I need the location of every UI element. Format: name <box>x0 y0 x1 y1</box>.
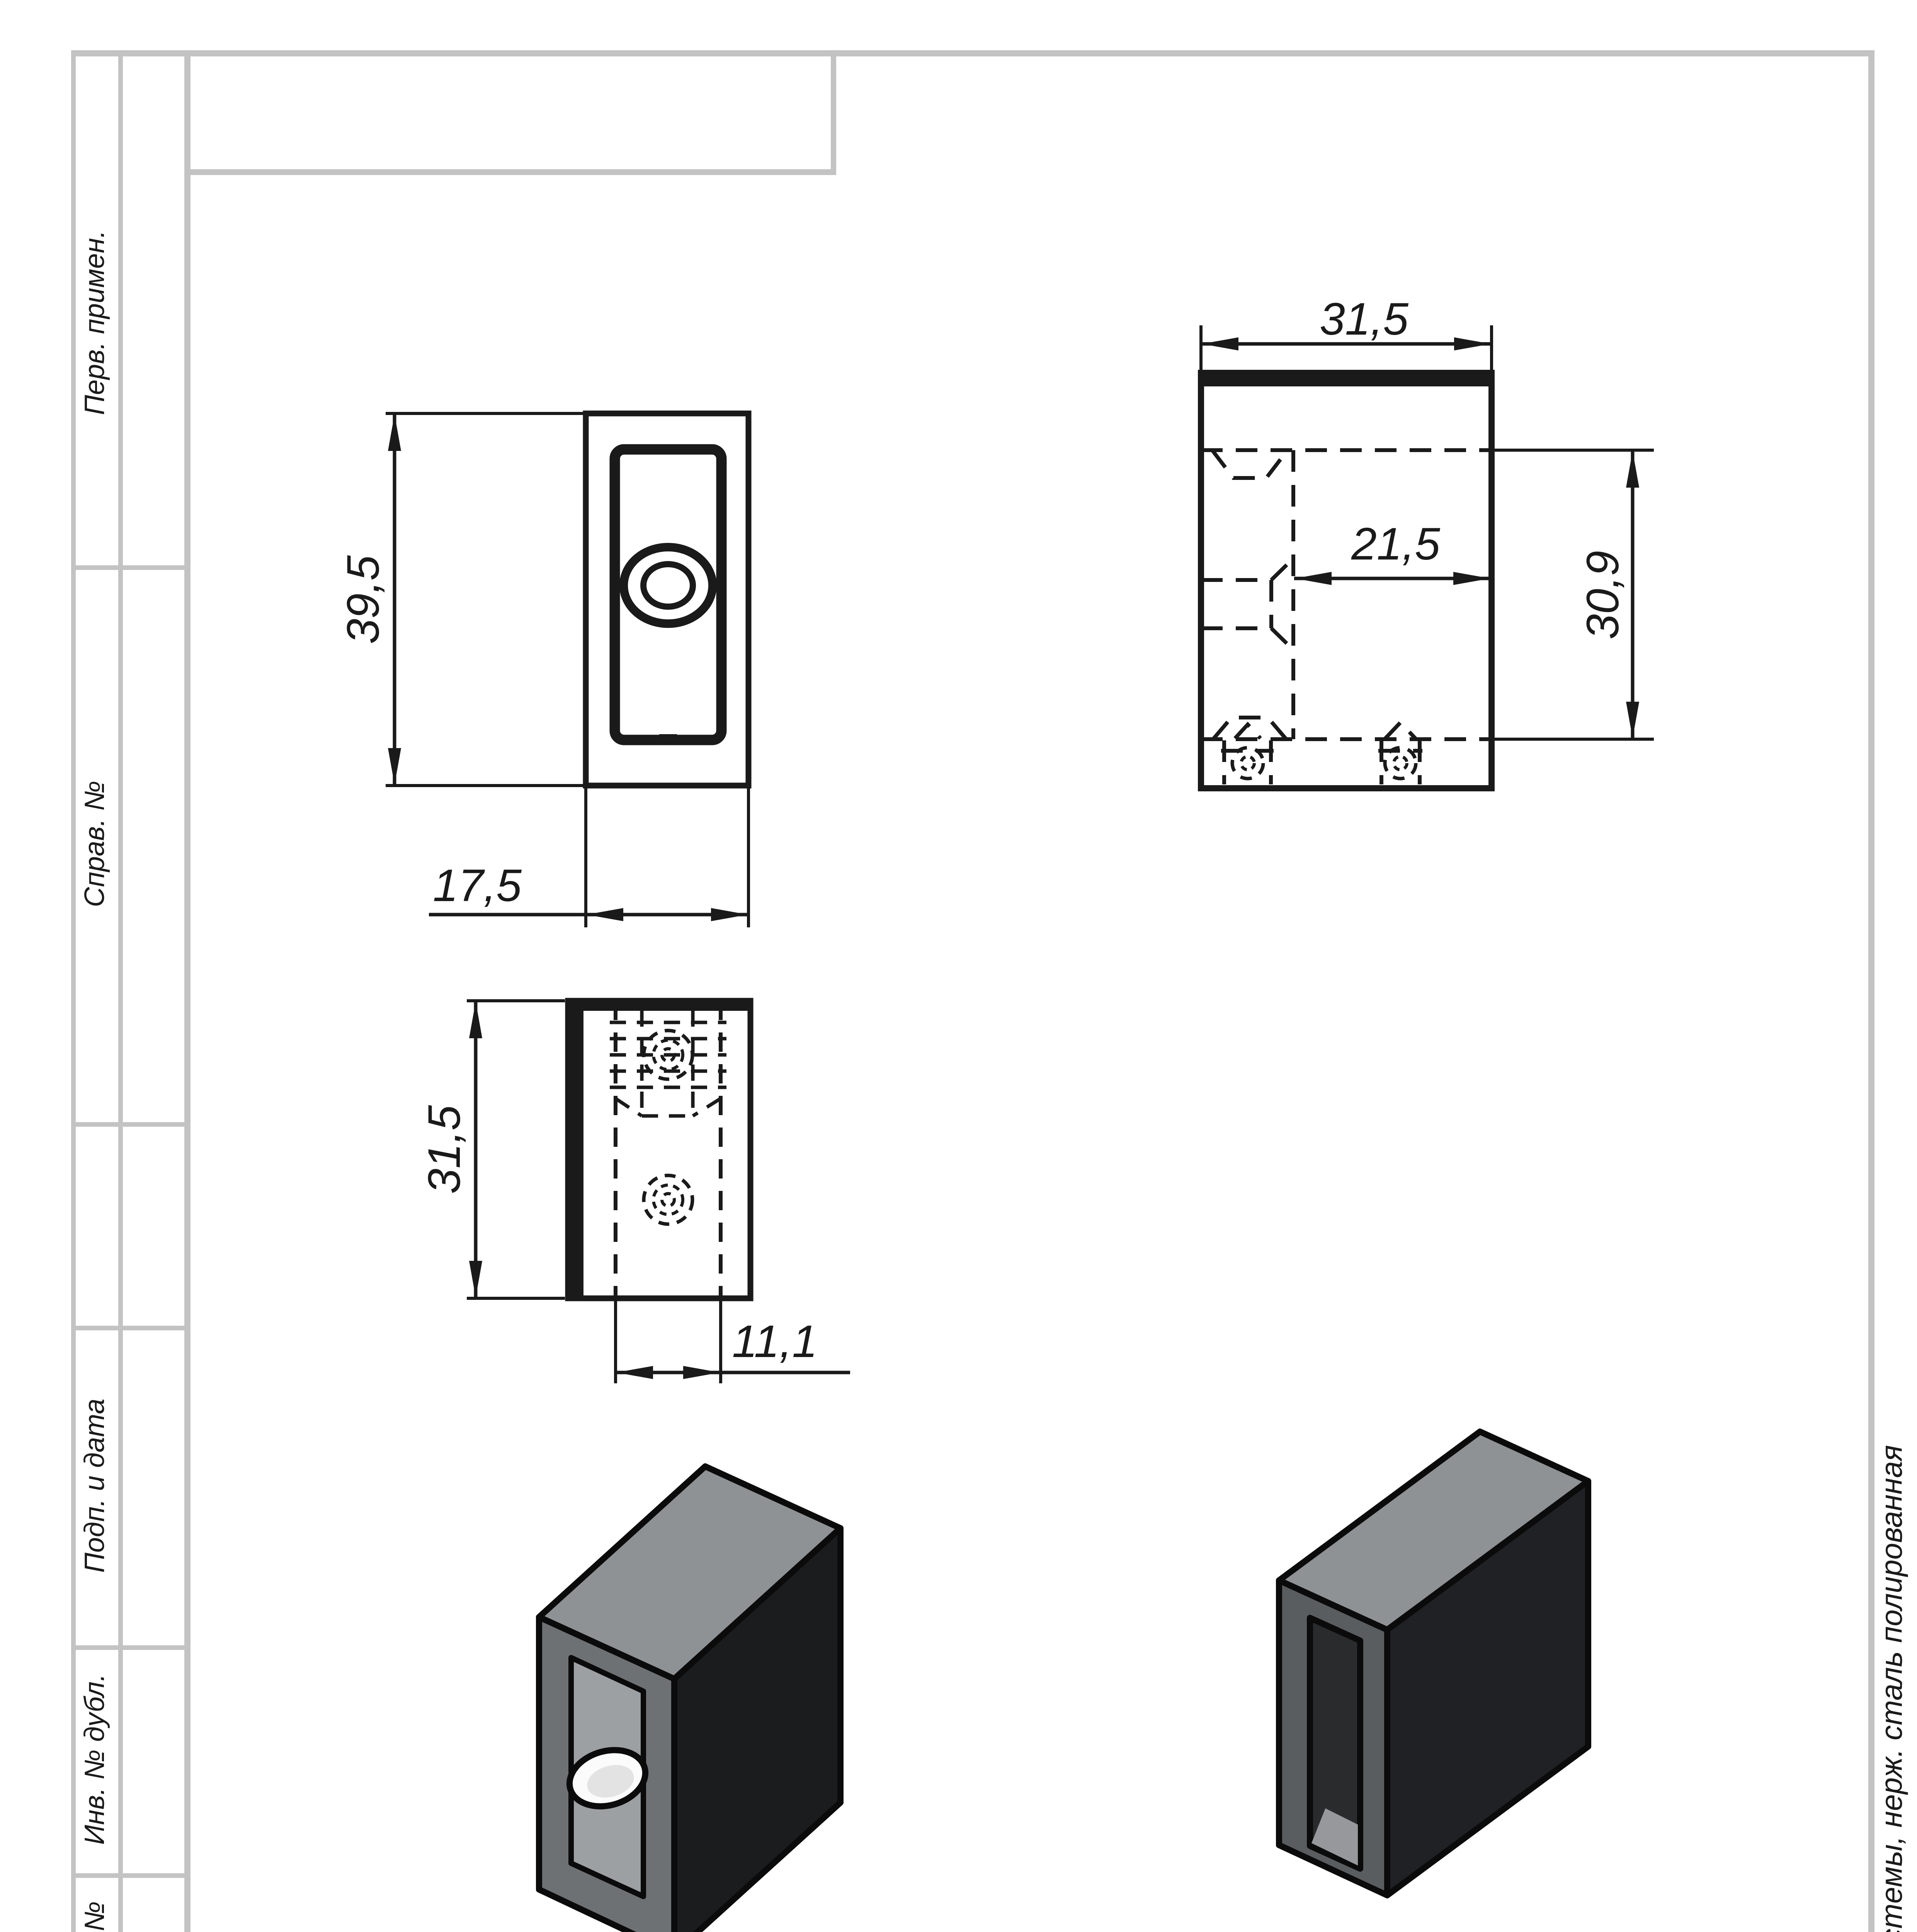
file-note: Файл: 806-407-U Комплект душевой (INOX) … <box>1874 1445 1909 1932</box>
dim-top-inner-label: 21,5 <box>1351 518 1440 570</box>
left-margin-label-perv-primen: Перв. примен. <box>79 230 111 415</box>
left-margin-label-podp-data-1: Подп. и дата <box>79 1399 111 1573</box>
drawing-views <box>0 0 1917 1932</box>
dim-top-width-label: 31,5 <box>1320 293 1408 345</box>
dim-front-width-label: 17,5 <box>433 859 522 912</box>
dim-bottom-width-label: 11,1 <box>732 1315 818 1368</box>
dim-bottom-length-label: 31,5 <box>418 1105 471 1194</box>
dim-front-height-label: 39,5 <box>337 555 390 644</box>
left-margin-label-vzam-inv: Взам. инв. № <box>79 1901 111 1932</box>
drawing-sheet: 39,5 17,5 31,5 21,5 30,9 31,5 11,1 Перв.… <box>0 0 1917 1932</box>
left-margin-label-inv-dubl: Инв. № дубл. <box>79 1674 111 1845</box>
left-margin-label-sprav-no: Справ. № <box>79 781 111 907</box>
dim-top-height-label: 30,9 <box>1577 551 1629 639</box>
